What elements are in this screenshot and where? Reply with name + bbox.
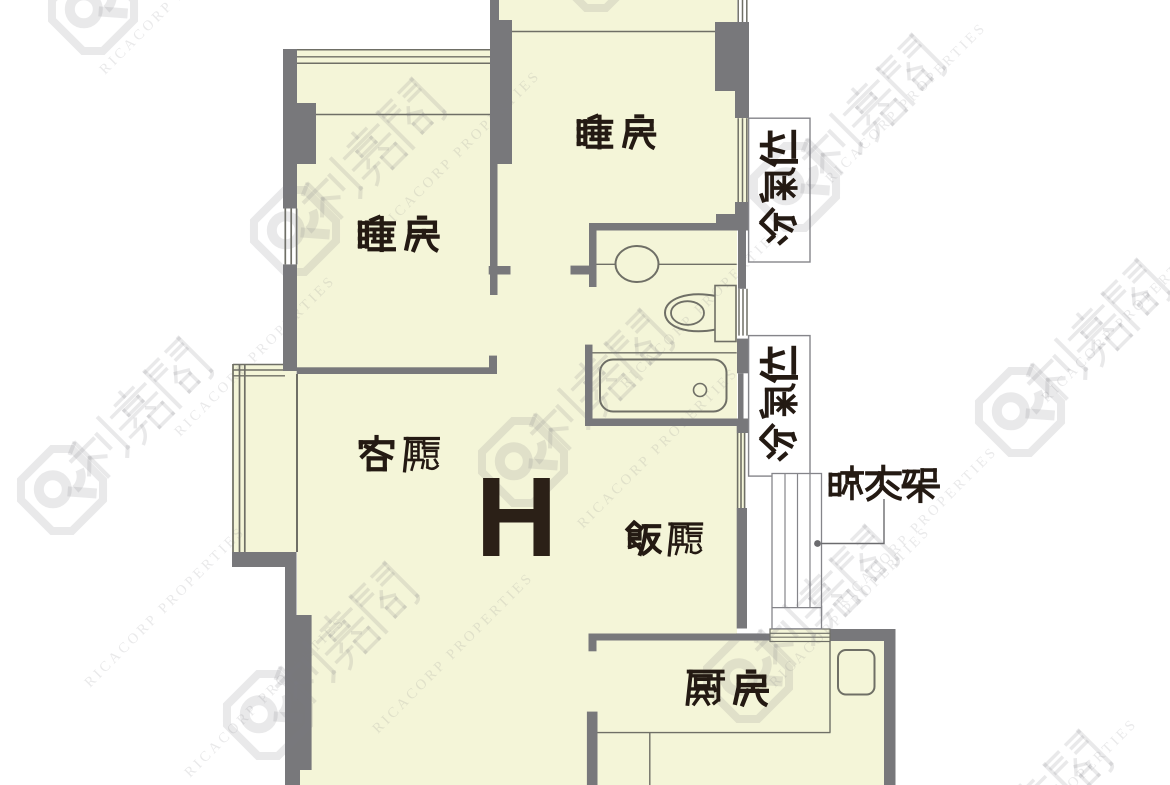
svg-text:RICACORP PROPERTIES: RICACORP PROPERTIES <box>1039 238 1170 406</box>
svg-text:RICACORP PROPERTIES: RICACORP PROPERTIES <box>82 523 250 691</box>
svg-text:H: H <box>476 454 558 581</box>
svg-text:RICACORP PROPERTIES: RICACORP PROPERTIES <box>834 443 1002 611</box>
